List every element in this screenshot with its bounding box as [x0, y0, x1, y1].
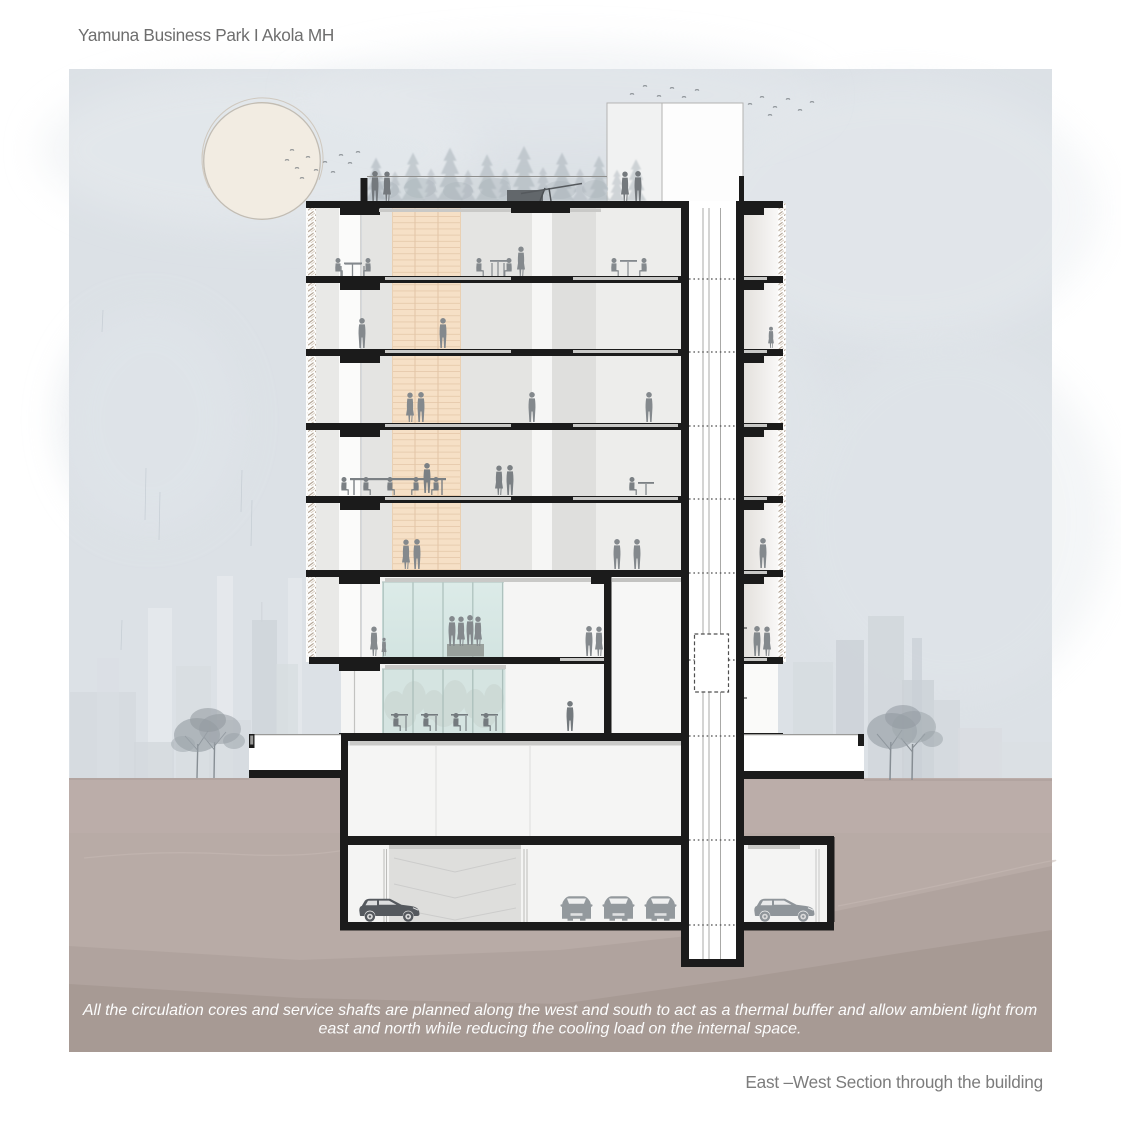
- svg-text:All the circulation cores and: All the circulation cores and service sh…: [82, 1002, 1037, 1019]
- svg-text:Yamuna Business Park I Akola M: Yamuna Business Park I Akola MH: [78, 25, 334, 45]
- svg-text:east and north while reducing: east and north while reducing the coolin…: [319, 1021, 802, 1038]
- svg-text:East –West Section through the: East –West Section through the building: [745, 1072, 1043, 1092]
